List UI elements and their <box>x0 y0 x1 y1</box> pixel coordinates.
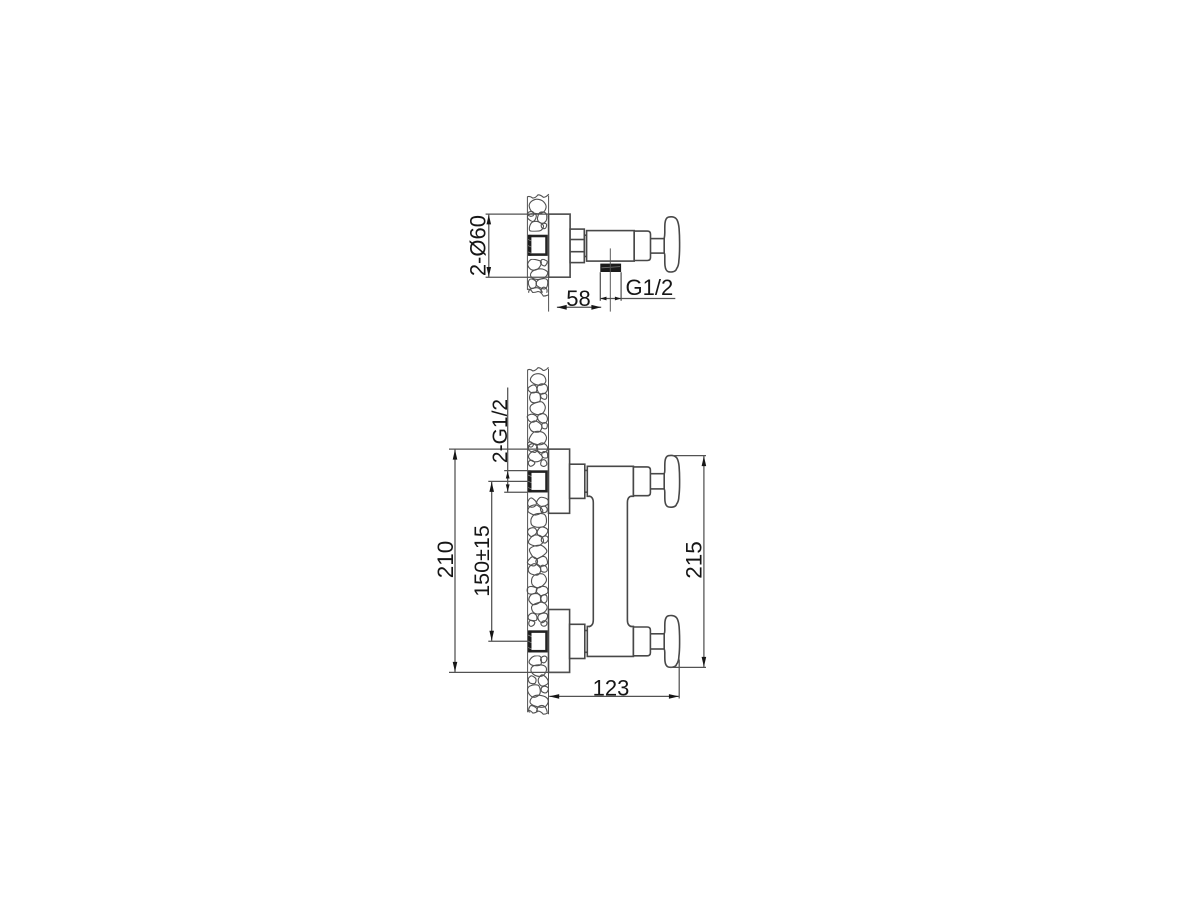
svg-text:58: 58 <box>566 286 590 311</box>
svg-text:210: 210 <box>433 541 458 579</box>
svg-text:150±15: 150±15 <box>470 525 494 597</box>
svg-text:123: 123 <box>593 675 630 700</box>
svg-text:2-Ø60: 2-Ø60 <box>465 215 490 276</box>
svg-text:2-G1/2: 2-G1/2 <box>489 399 512 463</box>
svg-text:G1/2: G1/2 <box>626 275 674 300</box>
svg-text:215: 215 <box>681 541 706 579</box>
